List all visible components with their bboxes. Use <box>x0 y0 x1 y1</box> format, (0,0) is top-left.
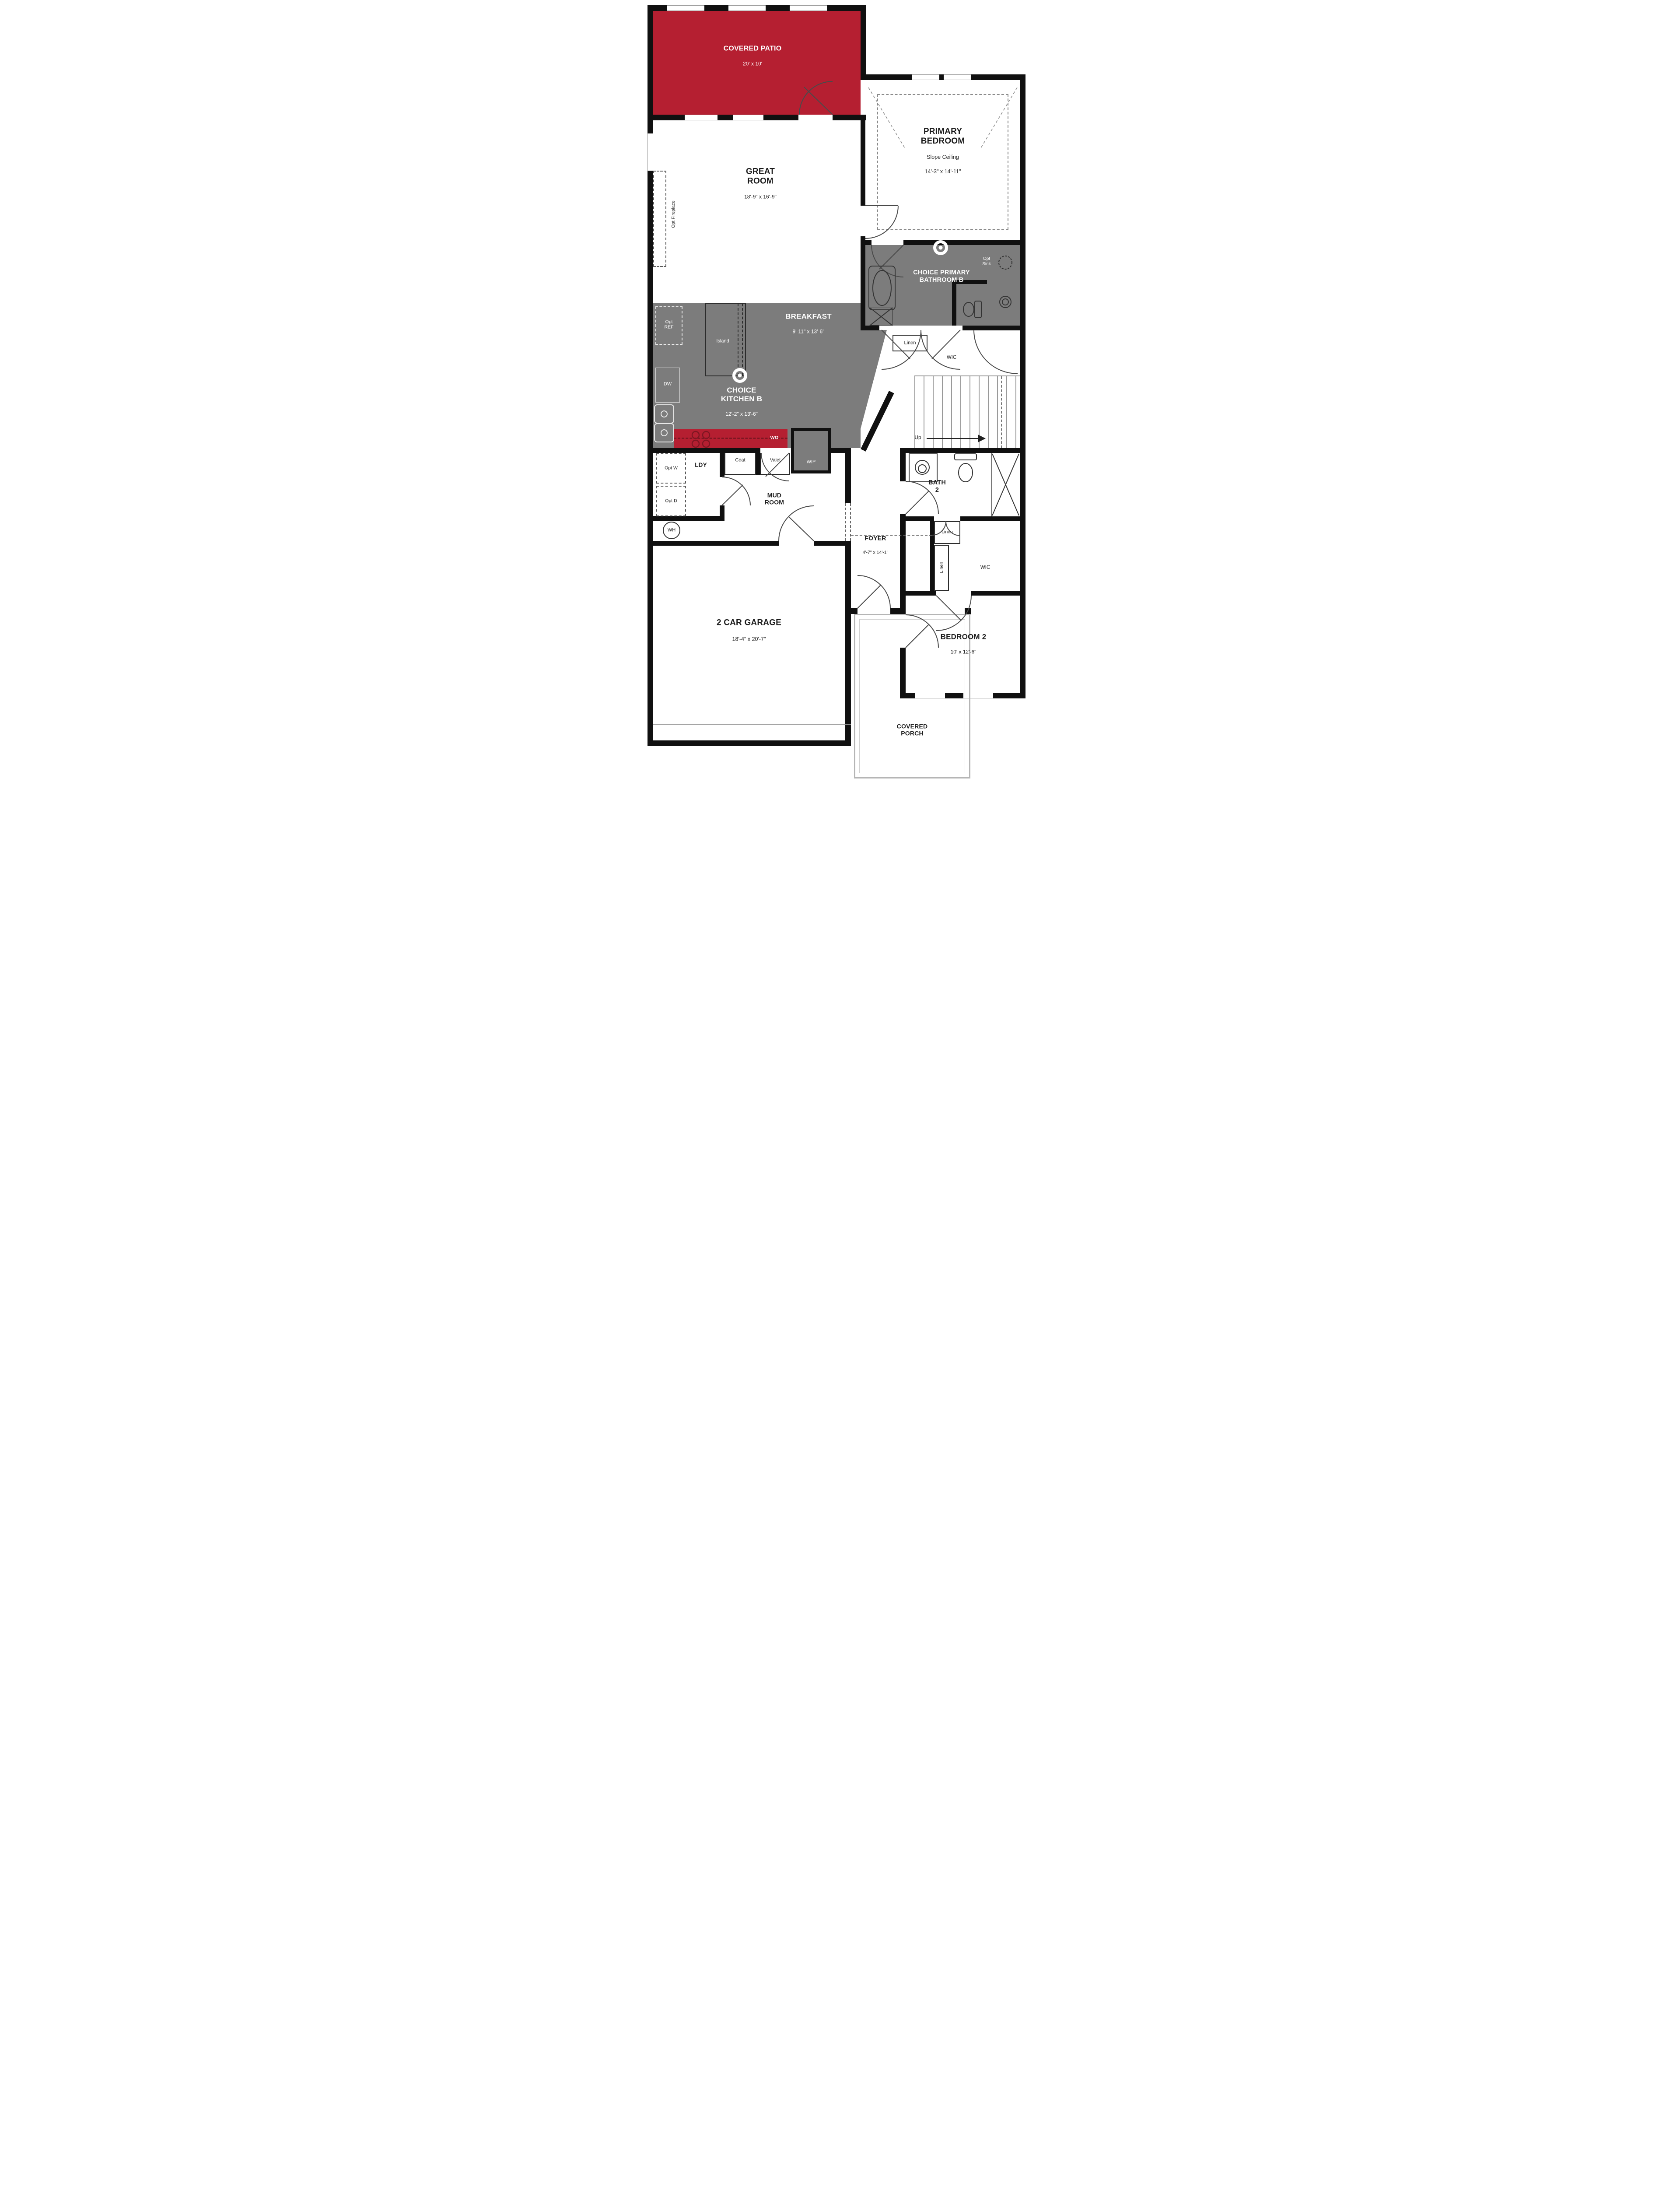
bedroom2-label: BEDROOM 2 10' x 12'-6" <box>920 625 1007 664</box>
island-label: Island <box>716 330 729 352</box>
opt-fireplace-box <box>653 171 666 267</box>
greatroom-side-window <box>647 133 653 171</box>
bath2-name: BATH 2 <box>926 479 948 494</box>
wall-divider-lower <box>861 236 865 330</box>
hall-linen-text: Linen <box>904 340 916 346</box>
stairs-dash-line <box>1001 376 1002 448</box>
patio-window-2 <box>728 5 766 11</box>
covered-porch-name: COVERED PORCH <box>890 723 934 737</box>
opt-d-label: Opt D <box>662 491 680 512</box>
kitchen-label: CHOICE KITCHEN B 12'-2" x 13'-6" <box>711 378 772 425</box>
primary-bathroom-name: CHOICE PRIMARY BATHROOM B <box>906 269 976 284</box>
valet-text: Valet <box>770 458 780 463</box>
great-room-dims: 18'-9" x 16'-9" <box>732 194 789 200</box>
coat-text: Coat <box>735 458 745 463</box>
bedroom2-wic-text: WIC <box>980 565 990 571</box>
covered-patio-dims: 20' x 10' <box>704 61 801 67</box>
breakfast-dims: 9'-11" x 13'-6" <box>765 329 852 335</box>
primary-bathroom-label: CHOICE PRIMARY BATHROOM B <box>906 261 976 292</box>
up-label: Up <box>914 427 921 449</box>
wall-ldy-right-a <box>720 448 724 477</box>
wall-foyer-front-b <box>890 608 906 614</box>
wall-linen-divider <box>930 516 934 596</box>
foyer-dims: 4'-7" x 14'-1" <box>851 550 899 555</box>
coat-label: Coat <box>735 449 745 471</box>
wall-foyer-front-a <box>851 608 857 614</box>
dw-label: DW <box>664 373 672 395</box>
hall-linen-label: Linen <box>904 332 916 354</box>
patio-window-1 <box>667 5 704 11</box>
wall-bath-top-a <box>861 240 871 245</box>
wall-foyer-right-b <box>900 514 906 615</box>
garage-dims: 18'-4" x 20'-7" <box>679 636 819 642</box>
primary-bedroom-note: Slope Ceiling <box>903 154 982 160</box>
opt-sink-text: Opt Sink <box>979 257 994 267</box>
wall-patio-right <box>861 5 866 80</box>
greatroom-door-opening <box>798 115 833 120</box>
garage-door-line-2 <box>653 731 851 731</box>
patio-window-3 <box>790 5 827 11</box>
opt-sink-label: Opt Sink <box>979 249 994 275</box>
island-dash-line-1 <box>738 304 738 375</box>
ldy-label: LDY <box>695 454 707 477</box>
cased-opening-dash-1 <box>845 503 846 541</box>
linen3-vertical-label: Linen <box>939 554 944 581</box>
floor-plan: COVERED PATIO 20' x 10' GREAT ROOM 18'-9… <box>630 0 1050 807</box>
opt-fireplace-label: Opt Fireplace <box>671 193 676 236</box>
wip-text: WIP <box>807 459 816 465</box>
wall-bath2-bottom-b <box>960 516 1025 521</box>
ldy-text: LDY <box>695 462 707 469</box>
mud-room-label: MUD ROOM <box>759 484 790 514</box>
opt-ref-label: Opt REF <box>660 312 678 338</box>
garage-label: 2 CAR GARAGE 18'-4" x 20'-7" <box>679 610 819 650</box>
covered-patio-name: COVERED PATIO <box>704 45 801 53</box>
wall-bath-top-b <box>903 240 1025 245</box>
wall-coat-divider <box>756 448 760 475</box>
linen3-text: Linen <box>939 562 944 573</box>
cased-opening-dash-2 <box>850 503 851 541</box>
breakfast-label: BREAKFAST 9'-11" x 13'-6" <box>765 305 852 344</box>
great-room-name: GREAT ROOM <box>732 167 789 186</box>
bath2-shower-box <box>991 453 1020 516</box>
primary-window-2 <box>944 74 971 80</box>
wall-wic-bottom-b <box>971 591 1025 596</box>
wo-label: WO <box>770 427 779 449</box>
primary-bedroom-dims: 14'-3" x 14'-11" <box>903 168 982 175</box>
kitchen-name: CHOICE KITCHEN B <box>711 386 772 403</box>
opt-fireplace-text: Opt Fireplace <box>671 200 676 228</box>
island-text: Island <box>716 339 729 344</box>
choice-bathroom-bullseye-icon <box>933 240 948 255</box>
up-text: Up <box>914 435 921 441</box>
garage-door-line-1 <box>653 724 851 725</box>
wh-label: WH <box>668 519 675 541</box>
porch-column <box>965 608 971 614</box>
wall-wic-bottom-a <box>900 591 936 596</box>
wo-text: WO <box>770 435 779 441</box>
bedroom2-dims: 10' x 12'-6" <box>920 649 1007 656</box>
dw-text: DW <box>664 382 672 387</box>
opt-w-text: Opt W <box>662 466 680 471</box>
hall-wic-label: WIC <box>947 347 956 369</box>
bedroom2-name: BEDROOM 2 <box>920 633 1007 642</box>
opt-w-label: Opt W <box>662 458 680 479</box>
garage-name: 2 CAR GARAGE <box>679 618 819 628</box>
wall-garage-top-a <box>647 541 779 546</box>
covered-patio-label: COVERED PATIO 20' x 10' <box>704 37 801 75</box>
mud-room-name: MUD ROOM <box>759 492 790 506</box>
wall-bath2-bottom-a <box>900 516 932 521</box>
foyer-label: FOYER 4'-7" x 14'-1" <box>851 526 899 563</box>
island-dash-line-2 <box>742 304 743 375</box>
wip-label: WIP <box>807 451 816 473</box>
wall-garage-bottom <box>647 740 851 746</box>
bedroom2-wic-label: WIC <box>980 557 990 579</box>
wall-primary-top <box>861 74 1025 80</box>
stairs <box>914 375 1020 448</box>
primary-window-1 <box>912 74 939 80</box>
bath-door-opening <box>871 240 903 245</box>
valet-label: Valet <box>770 449 780 471</box>
breakfast-name: BREAKFAST <box>765 312 852 321</box>
vanity-line <box>996 245 996 326</box>
foyer-name: FOYER <box>851 535 899 542</box>
primary-bedroom-name: PRIMARY BEDROOM <box>903 127 982 146</box>
covered-porch-label: COVERED PORCH <box>890 715 934 745</box>
hall-wic-text: WIC <box>947 355 956 361</box>
greatroom-window-1 <box>685 115 717 120</box>
opt-ref-text: Opt REF <box>660 319 678 330</box>
great-room-label: GREAT ROOM 18'-9" x 16'-9" <box>732 159 789 209</box>
linen2-text: Linen <box>941 529 953 535</box>
wall-garage-right-b <box>845 541 851 740</box>
primary-bedroom-label: PRIMARY BEDROOM Slope Ceiling 14'-3" x 1… <box>903 119 982 183</box>
linen2-label: Linen <box>941 522 953 543</box>
wall-foyer-right-a <box>900 448 906 481</box>
wall-ldy-bottom <box>653 516 724 521</box>
wh-text: WH <box>668 528 675 533</box>
wall-bath-bottom-a <box>861 326 879 330</box>
kitchen-dims: 12'-2" x 13'-6" <box>711 411 772 417</box>
wall-bath-bottom-b <box>962 326 1025 330</box>
wall-right <box>1020 74 1025 698</box>
wall-garage-right-a <box>845 448 851 503</box>
opt-d-text: Opt D <box>662 498 680 504</box>
bath2-label: BATH 2 <box>926 471 948 502</box>
wall-divider-upper <box>861 115 865 206</box>
greatroom-window-2 <box>733 115 763 120</box>
primary-shower-box <box>870 308 892 326</box>
